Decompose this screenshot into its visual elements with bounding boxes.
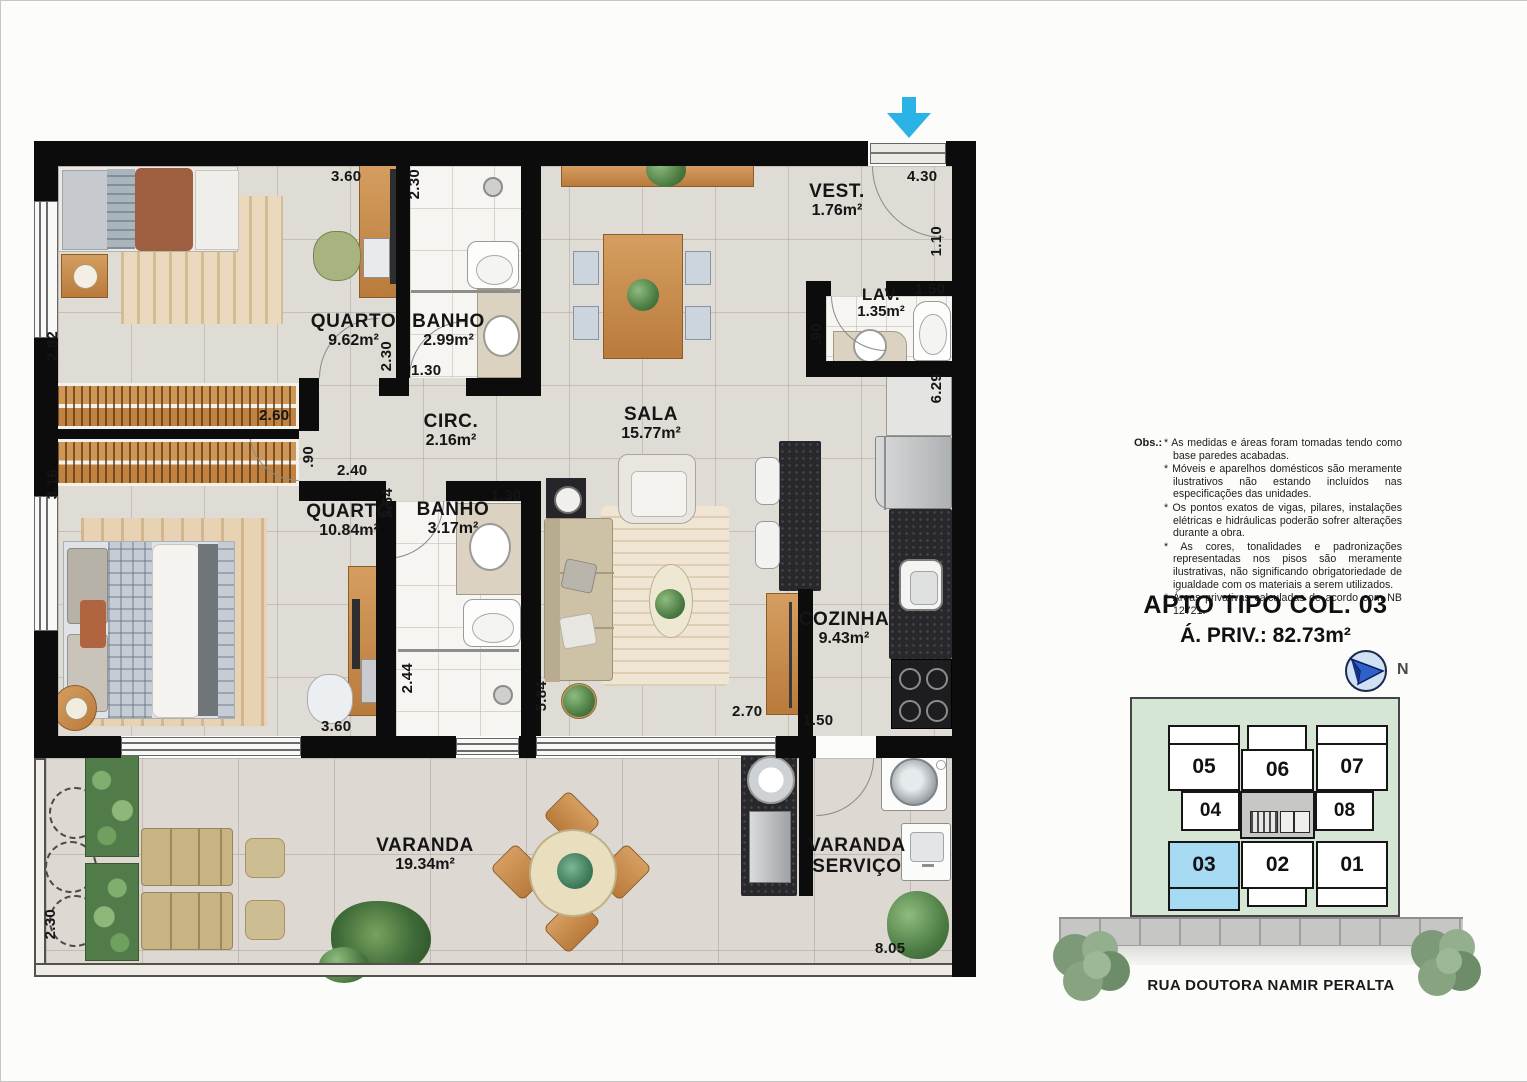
monitor2 xyxy=(352,599,360,669)
tree xyxy=(1045,921,1147,1011)
bed2-runner xyxy=(198,544,218,716)
dim-vest-right: 1.10 xyxy=(929,226,944,256)
wall-sala-left xyxy=(521,166,541,378)
wall xyxy=(301,736,456,758)
dim-sala-bottom: 2.70 xyxy=(732,704,762,719)
dim-quarto2-entry: 2.64 xyxy=(380,488,395,518)
dim-lav-top: 1.50 xyxy=(915,282,945,297)
dining-chair xyxy=(685,251,711,285)
bar-stool xyxy=(755,457,780,505)
nightstand xyxy=(61,254,108,298)
window-bedroom1 xyxy=(34,201,58,338)
unit-balcony xyxy=(1316,887,1388,907)
dim-circ-bottom: 2.40 xyxy=(337,463,367,478)
dim-sala-left: 5.84 xyxy=(534,681,549,711)
dim-quarto1-door: 2.30 xyxy=(379,341,394,371)
dim-banho2-top: 1.30 xyxy=(491,488,521,503)
compass-icon xyxy=(1343,649,1395,695)
wall xyxy=(34,631,58,736)
dim-quarto2-left: 3.16 xyxy=(45,469,60,499)
elevator xyxy=(1280,811,1310,833)
unit-balcony-03 xyxy=(1168,887,1240,911)
tree xyxy=(1397,917,1497,1011)
sliding-door-bedroom2 xyxy=(121,737,301,756)
floor-plant xyxy=(563,685,595,717)
wall xyxy=(34,166,58,201)
window-banho2 xyxy=(456,738,519,755)
kitchen-sink xyxy=(899,559,943,611)
keyplan-unit-01: 01 xyxy=(1316,841,1388,889)
keyplan-unit-03-highlighted: 03 xyxy=(1168,841,1240,889)
planter-box xyxy=(85,754,139,857)
dim-lav-left: .90 xyxy=(809,323,824,345)
wall xyxy=(466,378,541,396)
unit-balcony xyxy=(1247,725,1307,751)
desk-chair-bedroom1 xyxy=(313,231,361,281)
armchair xyxy=(618,454,696,524)
wall xyxy=(519,736,536,758)
entrance-arrow-icon xyxy=(887,97,931,139)
keyplan-unit-02: 02 xyxy=(1241,841,1314,889)
dim-closet1: 2.60 xyxy=(259,408,289,423)
dim-service-bottom: 8.05 xyxy=(875,941,905,956)
observations-label: Obs.: xyxy=(1134,437,1162,449)
bar-stool xyxy=(755,521,780,569)
kitchen-peninsula xyxy=(779,441,821,591)
bed2-duvet xyxy=(152,544,200,718)
sofa-side-table xyxy=(546,478,586,518)
dim-banho1-left: 2.30 xyxy=(407,169,422,199)
private-area: Á. PRIV.: 82.73m² xyxy=(1093,624,1438,648)
dim-quarto1-top: 3.60 xyxy=(331,169,361,184)
bed2-plaid-edge xyxy=(218,542,234,718)
dim-banho2-left: 2.44 xyxy=(400,663,415,693)
keyplan-core xyxy=(1240,791,1315,839)
keyplan-unit-05: 05 xyxy=(1168,743,1240,791)
dim-varanda-left: 2.30 xyxy=(43,909,58,939)
armchair-seat xyxy=(631,471,687,517)
gourmet-basin xyxy=(747,756,795,804)
room-label-varanda: VARANDA19.34m² xyxy=(345,835,505,874)
shower-head xyxy=(483,177,503,197)
wall xyxy=(776,736,816,758)
sofa xyxy=(544,518,613,681)
keyplan-unit-06: 06 xyxy=(1241,749,1314,791)
observation-item: * Os pontos exatos de vigas, pilares, in… xyxy=(1164,502,1402,540)
lounge-chair xyxy=(141,892,233,950)
compass-north-label: N xyxy=(1397,661,1409,679)
dim-quarto1-left: 2.82 xyxy=(45,331,60,361)
sofa-back xyxy=(545,519,560,682)
room-label-sala: SALA15.77m² xyxy=(601,404,701,443)
wall xyxy=(952,166,976,977)
laptop xyxy=(363,238,390,278)
patio-table-plant xyxy=(557,853,593,889)
sofa-pillow xyxy=(560,558,598,594)
table-lamp xyxy=(73,264,98,289)
wall xyxy=(34,736,121,758)
bed2-pillow-accent xyxy=(80,600,106,648)
stove xyxy=(891,659,952,729)
dining-chair xyxy=(685,306,711,340)
toilet-banho2 xyxy=(463,599,521,647)
toilet-banho1 xyxy=(467,241,519,289)
dim-cozinha-door: 1.50 xyxy=(803,713,833,728)
bed-duvet xyxy=(195,170,239,250)
sofa-pillow xyxy=(558,612,597,649)
room-label-banho1: BANHO2.99m² xyxy=(396,311,501,350)
dim-cozinha-right: 6.29 xyxy=(929,373,944,403)
bed2-plaid xyxy=(108,542,152,718)
bed-plaid xyxy=(107,169,135,249)
wall xyxy=(946,141,976,166)
wall xyxy=(876,736,976,758)
desk-bedroom1 xyxy=(359,163,398,298)
observation-item: * As medidas e áreas foram tomadas tendo… xyxy=(1164,437,1402,462)
dim-vest-top: 4.30 xyxy=(907,169,937,184)
washing-machine xyxy=(881,751,947,811)
room-label-varanda-servico: VARANDASERVIÇO xyxy=(797,835,917,877)
bed-blanket xyxy=(135,168,193,251)
entrance-threshold xyxy=(870,143,946,164)
bed-pillows xyxy=(62,170,108,250)
fridge xyxy=(875,436,952,509)
dim-banho1-bottom: 1.30 xyxy=(411,363,441,378)
unit-balcony xyxy=(1247,887,1307,907)
wall-wardrobe-divider xyxy=(34,429,299,439)
wall xyxy=(299,378,319,431)
dining-table-plant xyxy=(627,279,659,311)
gourmet-appliance xyxy=(749,811,791,883)
shower-glass xyxy=(411,290,520,293)
room-label-vest: VEST.1.76m² xyxy=(787,181,887,220)
lounge-chair xyxy=(141,828,233,886)
bed-single xyxy=(58,166,238,252)
keyplan-unit-07: 07 xyxy=(1316,743,1388,791)
round-side-table xyxy=(53,685,97,731)
dining-chair xyxy=(573,306,599,340)
room-label-circ: CIRC.2.16m² xyxy=(401,411,501,450)
desk-chair-bedroom2 xyxy=(307,674,353,724)
street-name: RUA DOUTORA NAMIR PERALTA xyxy=(1101,977,1441,994)
shower-glass2 xyxy=(398,649,519,652)
dim-quarto2-door: .90 xyxy=(301,446,316,468)
wall xyxy=(34,141,868,166)
varanda-parapet-bottom xyxy=(34,963,976,977)
stairs xyxy=(1250,811,1278,833)
wall-lav xyxy=(806,281,831,296)
dim-quarto2-bottom: 3.60 xyxy=(321,719,351,734)
coffee-table-flowers xyxy=(655,589,685,619)
observation-item: * As cores, tonalidades e padronizações … xyxy=(1164,541,1402,591)
wall xyxy=(379,378,409,396)
shower-head2 xyxy=(493,685,513,705)
observation-item: * Móveis e aparelhos domésticos são mera… xyxy=(1164,463,1402,501)
sofa-lamp xyxy=(554,486,582,514)
floorplan-page: QUARTO9.62m² BANHO2.99m² CIRC.2.16m² QUA… xyxy=(0,0,1527,1082)
side-table-lamp xyxy=(65,697,88,720)
planter-box xyxy=(85,863,139,961)
sliding-door-sala xyxy=(536,737,776,756)
apartment-title: APTO TIPO COL. 03 Á. PRIV.: 82.73m² xyxy=(1093,591,1438,648)
ottoman xyxy=(245,838,285,878)
ottoman xyxy=(245,900,285,940)
keyplan-unit-04: 04 xyxy=(1181,791,1240,831)
room-label-cozinha: COZINHA9.43m² xyxy=(783,609,905,648)
room-label-banho2: BANHO3.17m² xyxy=(393,499,513,538)
window-bedroom2 xyxy=(34,496,58,631)
dining-chair xyxy=(573,251,599,285)
apartment-type: APTO TIPO COL. 03 xyxy=(1093,591,1438,620)
keyplan-unit-08: 08 xyxy=(1315,791,1374,831)
wall xyxy=(299,481,386,501)
